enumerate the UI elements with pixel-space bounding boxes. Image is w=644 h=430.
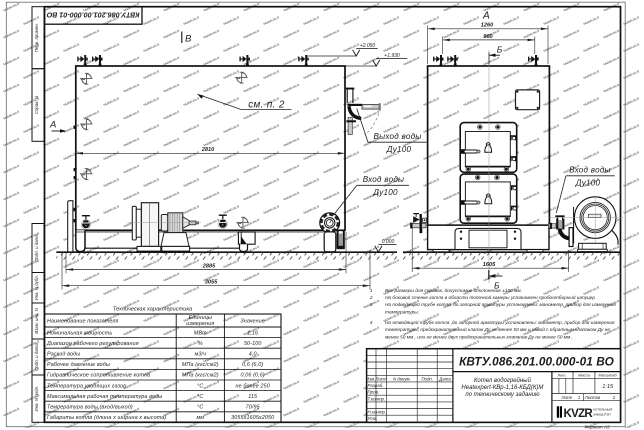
- svg-text:2: 2: [369, 295, 373, 301]
- svg-text:Масса: Масса: [578, 373, 590, 378]
- svg-text:960: 960: [483, 34, 493, 40]
- svg-text:Утв.: Утв.: [368, 416, 378, 421]
- svg-text:Все размеры для справок, допус: Все размеры для справок, допустимое откл…: [385, 288, 522, 294]
- svg-text:Перв. примен.: Перв. примен.: [34, 23, 39, 52]
- svg-text:4: 4: [370, 320, 373, 326]
- svg-text:70/95: 70/95: [246, 405, 261, 411]
- svg-text:На боковой стенке котла в обла: На боковой стенке котла в области топочн…: [385, 294, 595, 301]
- svg-text:Т.контр.: Т.контр.: [368, 396, 386, 401]
- svg-text:не более 250: не более 250: [236, 383, 270, 389]
- svg-text:Ду100: Ду100: [575, 178, 601, 187]
- svg-text:Лит.: Лит.: [556, 373, 566, 378]
- svg-text:Б: Б: [497, 44, 503, 54]
- svg-text:ЗАВОД РЭП: ЗАВОД РЭП: [593, 412, 611, 416]
- svg-text:+2.050: +2.050: [360, 43, 376, 49]
- svg-text:Расход воды: Расход воды: [47, 352, 80, 358]
- svg-text:Максимальная рабочая температу: Максимальная рабочая температура воды: [47, 394, 162, 400]
- svg-text:МПа (кгс/см2): МПа (кгс/см2): [182, 362, 219, 368]
- svg-text:0,06 (0,6): 0,06 (0,6): [241, 373, 265, 379]
- svg-text:Дата: Дата: [438, 376, 451, 381]
- svg-text:МВт: МВт: [194, 330, 207, 336]
- svg-text:Инв. N подл.: Инв. N подл.: [34, 386, 39, 412]
- svg-text:Справ. N: Справ. N: [34, 95, 39, 114]
- svg-text:+1.930: +1.930: [384, 53, 400, 59]
- svg-text:В: В: [185, 34, 192, 45]
- svg-text:Разраб.: Разраб.: [368, 383, 384, 388]
- svg-text:2885: 2885: [202, 263, 216, 269]
- svg-text:Рабочее давление воды: Рабочее давление воды: [47, 362, 110, 368]
- svg-text:Лист: Лист: [561, 395, 573, 400]
- svg-text:Значение: Значение: [240, 319, 265, 325]
- svg-text:А: А: [482, 11, 490, 22]
- svg-text:Температура воды (вход/выход): Температура воды (вход/выход): [47, 405, 133, 411]
- svg-text:Выход воды: Выход воды: [373, 132, 421, 141]
- svg-text:Подп. и дата: Подп. и дата: [34, 343, 39, 371]
- svg-text:0,6 (6,0): 0,6 (6,0): [242, 362, 263, 368]
- svg-text:0.000: 0.000: [382, 239, 395, 245]
- svg-text:115: 115: [248, 394, 258, 400]
- svg-text:1,16: 1,16: [247, 330, 258, 336]
- svg-text:КОТЕЛЬНЫЙ: КОТЕЛЬНЫЙ: [593, 408, 612, 412]
- svg-text:по техническому заданию: по техническому заданию: [465, 392, 540, 398]
- svg-text:%: %: [198, 341, 203, 347]
- svg-text:°С: °С: [197, 383, 203, 389]
- svg-text:Диапазон рабочего регулировани: Диапазон рабочего регулирования: [46, 341, 139, 347]
- svg-text:А: А: [49, 120, 56, 131]
- svg-text:Вход воды: Вход воды: [363, 175, 405, 184]
- svg-text:мм: мм: [196, 415, 204, 421]
- svg-text:N докум.: N докум.: [393, 376, 411, 381]
- svg-text:Вход воды: Вход воды: [569, 166, 611, 175]
- svg-text:температуры, предохранительный: температуры, предохранительный клапан Ду…: [385, 326, 610, 333]
- svg-text:см. п. 2: см. п. 2: [248, 100, 285, 111]
- svg-text:Ду100: Ду100: [372, 188, 398, 197]
- svg-text:2810: 2810: [201, 147, 215, 153]
- svg-text:Температура уходящих газов: Температура уходящих газов: [47, 383, 126, 389]
- svg-text:1605: 1605: [483, 262, 496, 268]
- svg-text:Листов: Листов: [584, 395, 601, 400]
- svg-text:КВТУ.086.201.00.000-01 ВО: КВТУ.086.201.00.000-01 ВО: [46, 11, 139, 20]
- svg-text:3: 3: [370, 302, 373, 308]
- svg-text:Подп.: Подп.: [421, 376, 433, 381]
- svg-text:1260: 1260: [481, 23, 494, 29]
- svg-text:1: 1: [578, 395, 580, 400]
- svg-text:Габариты котла (длина х ширина: Габариты котла (длина х ширина х высота): [47, 415, 166, 421]
- svg-text:КВТУ.086.201.00.000-01 ВО: КВТУ.086.201.00.000-01 ВО: [459, 354, 614, 368]
- svg-text:Пров.: Пров.: [368, 390, 380, 395]
- svg-text:3055х1605х2050: 3055х1605х2050: [231, 415, 274, 421]
- svg-text:Подп. и дата: Подп. и дата: [34, 234, 39, 262]
- svg-text:Н.контр.: Н.контр.: [368, 410, 387, 415]
- svg-text:Инв. N дубл.: Инв. N дубл.: [34, 275, 39, 300]
- svg-text:KVZR: KVZR: [564, 408, 594, 420]
- svg-text:Наименование показателя: Наименование показателя: [47, 319, 119, 325]
- svg-text:Котел водогрейный: Котел водогрейный: [474, 377, 532, 384]
- svg-text:температуры.: температуры.: [385, 310, 419, 315]
- svg-text:МПа (кгс/см2): МПа (кгс/см2): [182, 373, 219, 379]
- svg-text:м3/ч: м3/ч: [195, 352, 207, 358]
- svg-text:Техническая характеристика: Техническая характеристика: [113, 307, 192, 313]
- svg-text:Heatexpert-КВр-1,16-КБД(К)М: Heatexpert-КВр-1,16-КБД(К)М: [461, 385, 543, 391]
- svg-text:50-100: 50-100: [244, 341, 262, 347]
- svg-text:4,0: 4,0: [249, 352, 257, 358]
- svg-text:Взам. инв. N: Взам. инв. N: [34, 307, 39, 333]
- svg-text:Изм.Лист: Изм.Лист: [366, 376, 387, 381]
- svg-text:Формат А3: Формат А3: [584, 424, 610, 429]
- svg-text:Номинальная мощность: Номинальная мощность: [47, 330, 112, 336]
- svg-text:менее 50 мм , или не менее дв: менее 50 мм , или не менее двух предохра…: [385, 334, 573, 340]
- svg-text:измерения: измерения: [186, 321, 214, 327]
- svg-text:Масштаб: Масштаб: [598, 373, 617, 378]
- svg-text:Ду100: Ду100: [386, 145, 412, 154]
- svg-text:На отводящей трубе котла ,до з: На отводящей трубе котла ,до запорной ар…: [385, 319, 615, 326]
- svg-text:1: 1: [370, 288, 373, 294]
- svg-text:Гидравлическое сопротивление к: Гидравлическое сопротивление котла: [47, 373, 150, 379]
- svg-text:3055: 3055: [205, 280, 218, 286]
- svg-text:1:15: 1:15: [602, 384, 614, 390]
- svg-text:°С: °С: [197, 394, 203, 400]
- svg-text:На подводящей трубе котла, до: На подводящей трубе котла, до запорной а…: [385, 301, 616, 308]
- svg-text:°С: °С: [197, 405, 203, 411]
